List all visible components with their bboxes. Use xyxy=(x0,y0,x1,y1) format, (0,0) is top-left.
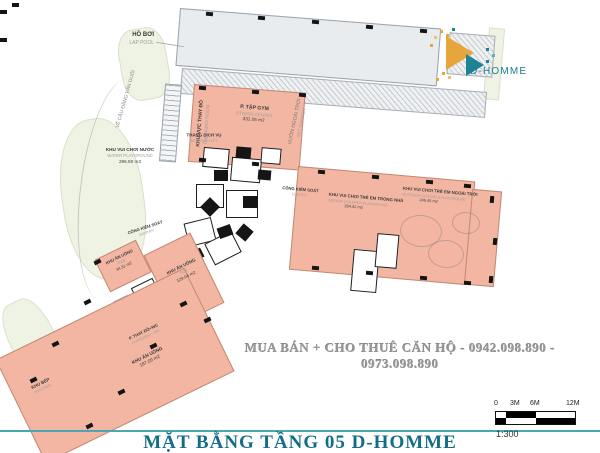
logo-pixel xyxy=(430,44,433,47)
column-marker xyxy=(258,16,265,21)
logo-pixel xyxy=(446,34,449,37)
lift-shaft xyxy=(236,146,252,158)
logo-pixel xyxy=(434,36,437,39)
column-marker xyxy=(299,93,306,98)
logo-pixel xyxy=(492,54,495,57)
logo-pixel xyxy=(448,76,451,79)
column-marker xyxy=(464,281,471,286)
core-room xyxy=(260,147,281,165)
lift-shaft xyxy=(243,196,258,208)
column-marker xyxy=(490,196,495,203)
logo-brand-text: D-HOMME xyxy=(470,66,527,77)
logo-pixel xyxy=(452,28,455,31)
scale-tick-12m: 12M xyxy=(566,400,580,407)
scale-cell xyxy=(506,418,516,424)
logo-pixel xyxy=(436,78,439,81)
label-service-lift: THANG DỊCH VỤ SERVICE LIFT xyxy=(182,133,227,144)
dhomme-logo: D-HOMME xyxy=(426,28,576,90)
column-marker xyxy=(372,175,379,180)
wing-room xyxy=(375,233,400,269)
watermark-contact-text: MUA BÁN + CHO THUÊ CĂN HỘ - 0942.098.890… xyxy=(215,340,585,372)
label-gantry-right: CỔNG KIỂM SOÁT GANTRY xyxy=(282,186,319,199)
column-marker xyxy=(493,238,498,245)
column-marker xyxy=(252,162,259,167)
column-marker xyxy=(318,170,325,175)
column-marker xyxy=(489,276,494,283)
column-marker xyxy=(420,276,427,281)
scale-cell xyxy=(496,418,506,424)
scale-ratio: 1:300 xyxy=(496,429,519,439)
lift-shaft xyxy=(258,169,272,180)
lift-shaft xyxy=(235,223,253,241)
logo-pixel xyxy=(486,60,489,63)
column-marker xyxy=(199,86,206,91)
column-marker xyxy=(0,38,7,42)
scale-tick-6m: 6M xyxy=(530,400,540,407)
scale-bar-graphic xyxy=(495,411,576,425)
floorplan-page: HỒ BƠI LAP POOL P. TẬP GYM FITNESS CENTE… xyxy=(0,0,600,453)
logo-pixel xyxy=(440,30,443,33)
scale-cell xyxy=(516,418,536,424)
lift-shaft xyxy=(214,170,228,181)
column-marker xyxy=(0,10,7,14)
column-marker xyxy=(426,180,433,185)
label-pool: HỒ BƠI LAP POOL xyxy=(108,32,154,46)
column-marker xyxy=(464,184,471,189)
label-water-playground: KHU VUI CHƠI NƯỚC WATER PLAYGROUND 296.5… xyxy=(103,148,157,166)
column-marker xyxy=(312,20,319,25)
column-marker xyxy=(252,90,259,95)
column-marker xyxy=(206,12,213,17)
column-marker xyxy=(366,25,373,30)
scale-bar: 0 3M 6M 12M 1:300 xyxy=(494,398,586,450)
scale-tick-0: 0 xyxy=(494,400,498,407)
column-marker xyxy=(312,266,319,271)
column-marker xyxy=(12,3,19,7)
column-marker xyxy=(199,158,206,163)
scale-tick-3m: 3M xyxy=(510,400,520,407)
scale-cell xyxy=(536,418,575,424)
logo-pixel xyxy=(486,48,489,51)
column-marker xyxy=(366,271,373,276)
column-marker xyxy=(83,299,91,306)
core-room xyxy=(202,147,230,169)
logo-pixel xyxy=(442,72,445,75)
